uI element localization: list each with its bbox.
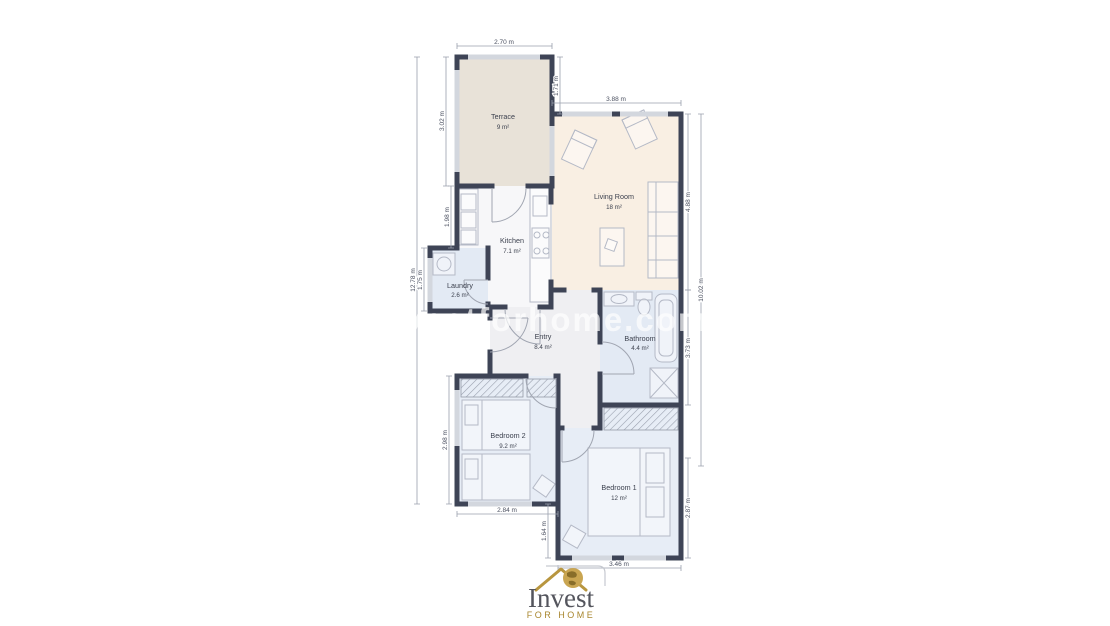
dim-terrace-width: 2.70 m: [457, 39, 552, 49]
room-label-laundry: Laundry: [447, 281, 473, 290]
watermark-text: investforhome.com: [371, 301, 709, 338]
room-area-bathroom: 4.4 m²: [631, 345, 649, 352]
room-terrace: [457, 57, 552, 186]
dim-bedroom2-left: 2.98 m: [442, 376, 452, 504]
dim-kitchen-left: 1.98 m: [444, 186, 454, 248]
dim-label: 1.71 m: [553, 76, 560, 96]
dim-label: 3.88 m: [606, 96, 626, 103]
room-area-kitchen: 7.1 m²: [503, 248, 521, 255]
bed2-b: [462, 454, 530, 500]
logo-tagline: FOR HOME: [527, 610, 596, 620]
room-area-living: 18 m²: [606, 204, 622, 211]
bed1: [588, 448, 670, 536]
room-label-kitchen: Kitchen: [500, 236, 524, 245]
dim-terrace-left: 3.02 m: [439, 57, 449, 186]
washing-machine: [433, 253, 455, 275]
wardrobe-2: [527, 379, 556, 397]
dim-label: 1.98 m: [444, 207, 451, 227]
room-area-bedroom1: 12 m²: [611, 495, 627, 502]
dim-label: 10.02 m: [698, 278, 705, 302]
room-area-terrace: 9 m²: [497, 124, 509, 131]
dim-bedroom2-width: 2.84 m: [457, 507, 558, 517]
dim-living-right: 4.88 m: [685, 114, 692, 290]
room-label-bedroom2: Bedroom 2: [490, 431, 525, 440]
floorplan-svg: 2.70 m 3.88 m 2.84 m 3.46 m 3.02 m 1.71 …: [0, 0, 1110, 626]
floorplan-canvas: 2.70 m 3.88 m 2.84 m 3.46 m 3.02 m 1.71 …: [0, 0, 1110, 626]
dim-label: 2.70 m: [494, 39, 514, 46]
room-area-entry: 8.4 m²: [534, 344, 552, 351]
dim-label: 2.98 m: [442, 430, 449, 450]
wardrobe-3: [604, 408, 678, 430]
dim-bedroom1-offset-left: 1.64 m: [541, 504, 551, 558]
room-area-bedroom2: 9.2 m²: [499, 443, 517, 450]
dim-bedroom1-right: 2.87 m: [685, 458, 692, 558]
dim-label: 2.87 m: [685, 498, 692, 518]
logo: Invest FOR HOME: [527, 566, 605, 620]
room-area-laundry: 2.6 m²: [451, 292, 469, 299]
dim-label: 3.73 m: [685, 338, 692, 358]
dim-label: 3.46 m: [609, 561, 629, 568]
sofa: [648, 182, 678, 278]
dim-label: 1.75 m: [417, 270, 424, 290]
logo-brand: Invest: [528, 583, 594, 613]
dim-living-width: 3.88 m: [552, 96, 681, 106]
dim-label: 4.88 m: [685, 192, 692, 212]
dim-label: 1.64 m: [541, 521, 548, 541]
dim-label: 12.78 m: [410, 268, 417, 292]
room-label-living: Living Room: [594, 192, 634, 201]
dim-label: 2.84 m: [497, 507, 517, 514]
wardrobe-1: [461, 379, 523, 397]
room-label-terrace: Terrace: [491, 112, 515, 121]
room-label-bedroom1: Bedroom 1: [601, 483, 636, 492]
kitchen-counter-left: [459, 189, 478, 245]
dim-overall-right: 10.02 m: [698, 114, 705, 466]
dim-label: 3.02 m: [439, 111, 446, 131]
